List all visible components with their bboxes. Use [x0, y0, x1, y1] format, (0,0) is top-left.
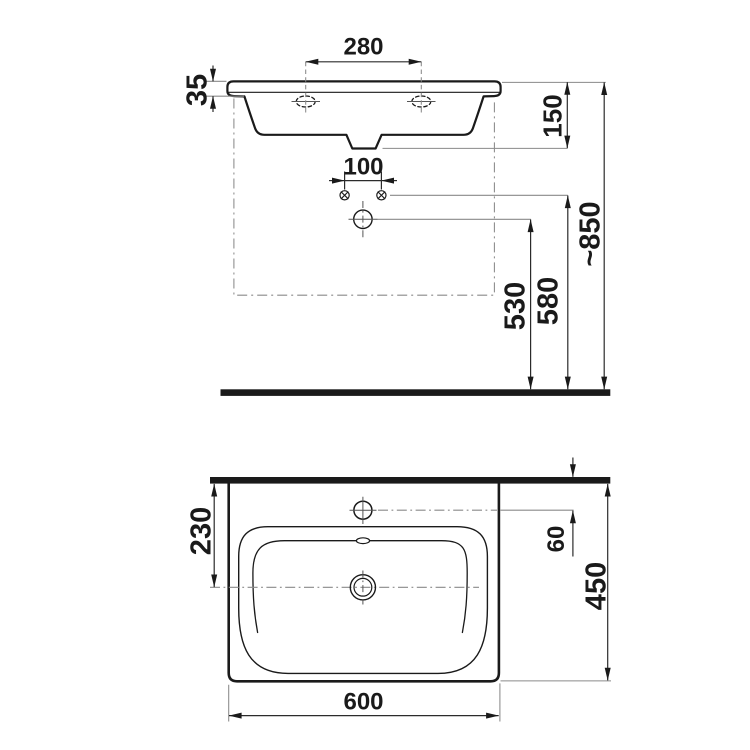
- dim-label-depth: 450: [581, 562, 613, 610]
- dim-label-fixing-height: 580: [533, 277, 565, 325]
- drawing-canvas: 280 35 100 150 530 580 ~850: [0, 0, 750, 750]
- dim-label-wall-to-waste: 230: [186, 507, 218, 555]
- wall-line: [210, 477, 610, 484]
- dim-label-tap-spacing: 280: [343, 34, 383, 61]
- dim-label-installation-height: ~850: [575, 201, 607, 266]
- basin-plan-outline: [229, 484, 499, 682]
- tap-hole-plan-crosshair: [350, 497, 377, 524]
- plan-view: 230 60 450 600: [186, 458, 613, 722]
- dim-label-rim-to-waste: 150: [538, 94, 568, 137]
- washbasin-dimension-drawing: 280 35 100 150 530 580 ~850: [0, 0, 750, 750]
- cabinet-chain-outline: [234, 99, 495, 296]
- tap-spacing-extension-lines: [306, 62, 422, 114]
- dim-label-wall-to-tap: 60: [543, 526, 570, 553]
- dim-label-fixing-spacing: 100: [343, 154, 383, 181]
- front-elevation-view: 280 35 100 150 530 580 ~850: [182, 34, 611, 396]
- dim-label-waste-height: 530: [500, 282, 532, 330]
- fixing-hole-left: [340, 191, 349, 200]
- overflow-slot: [356, 538, 369, 544]
- dim-label-rim-edge: 35: [182, 74, 214, 106]
- bowl-inner-line: [253, 541, 467, 633]
- dim-label-width: 600: [343, 689, 383, 716]
- floor-line: [221, 389, 611, 396]
- basin-front-outline: [227, 81, 500, 148]
- fixing-hole-right: [377, 191, 386, 200]
